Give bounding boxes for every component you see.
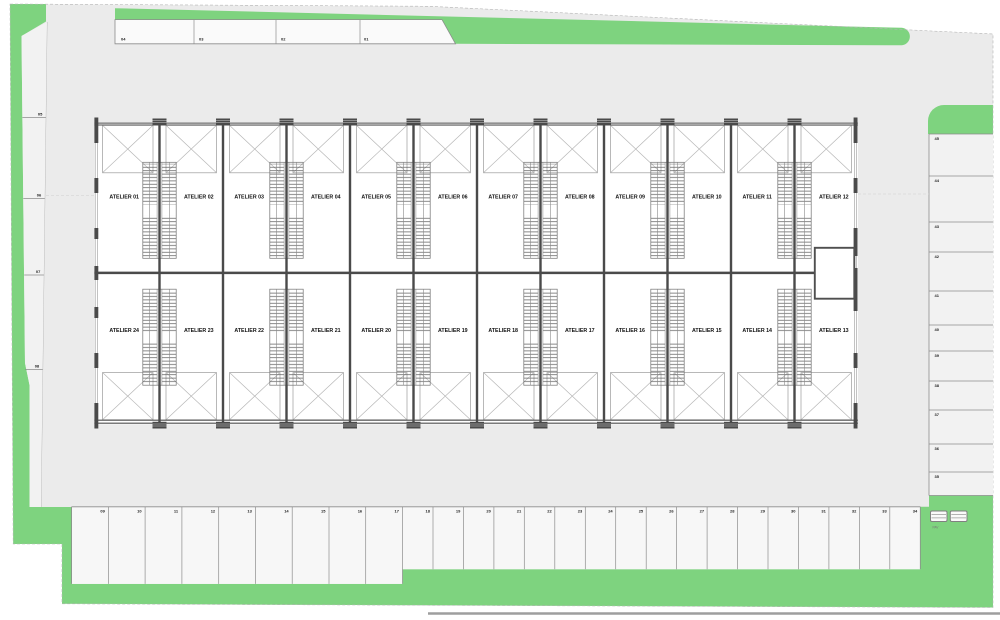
svg-text:32: 32 — [852, 509, 857, 514]
svg-text:10: 10 — [137, 509, 142, 514]
svg-text:ATELIER 07: ATELIER 07 — [488, 194, 518, 200]
svg-text:03: 03 — [199, 37, 204, 42]
svg-text:35: 35 — [935, 474, 940, 479]
svg-text:34: 34 — [913, 509, 918, 514]
svg-text:21: 21 — [517, 509, 522, 514]
svg-text:29: 29 — [761, 509, 766, 514]
svg-text:ATELIER 10: ATELIER 10 — [692, 194, 722, 200]
svg-text:25: 25 — [639, 509, 644, 514]
svg-text:42: 42 — [935, 254, 940, 259]
svg-text:ATELIER 11: ATELIER 11 — [743, 194, 772, 200]
svg-text:22: 22 — [547, 509, 552, 514]
svg-text:04: 04 — [121, 37, 126, 42]
svg-text:ATELIER 02: ATELIER 02 — [184, 194, 214, 200]
svg-text:13: 13 — [247, 509, 252, 514]
svg-text:45: 45 — [935, 136, 940, 141]
svg-text:ATELIER 20: ATELIER 20 — [361, 328, 391, 334]
svg-text:38: 38 — [935, 383, 940, 388]
svg-text:12: 12 — [211, 509, 216, 514]
svg-text:06: 06 — [37, 193, 42, 198]
svg-text:ATELIER 12: ATELIER 12 — [819, 194, 849, 200]
svg-text:31: 31 — [821, 509, 826, 514]
svg-text:ATELIER 03: ATELIER 03 — [234, 194, 264, 200]
svg-text:ATELIER 22: ATELIER 22 — [234, 328, 264, 334]
svg-text:26: 26 — [669, 509, 674, 514]
svg-text:ATELIER 15: ATELIER 15 — [692, 328, 722, 334]
svg-text:ATELIER 09: ATELIER 09 — [615, 194, 645, 200]
svg-text:16: 16 — [358, 509, 363, 514]
svg-text:44: 44 — [935, 178, 940, 183]
svg-text:17: 17 — [395, 509, 400, 514]
svg-text:37: 37 — [935, 412, 940, 417]
svg-text:ATELIER 01: ATELIER 01 — [109, 194, 139, 200]
svg-text:14: 14 — [284, 509, 289, 514]
svg-text:20: 20 — [486, 509, 491, 514]
svg-text:ATELIER 21: ATELIER 21 — [311, 328, 341, 334]
svg-text:ATELIER 13: ATELIER 13 — [819, 328, 849, 334]
svg-text:02: 02 — [281, 37, 286, 42]
svg-text:ATELIER 24: ATELIER 24 — [109, 328, 139, 334]
svg-text:18: 18 — [426, 509, 431, 514]
svg-text:ATELIER 23: ATELIER 23 — [184, 328, 214, 334]
svg-text:27: 27 — [700, 509, 705, 514]
svg-text:ATELIER 06: ATELIER 06 — [438, 194, 468, 200]
svg-text:ATELIER 08: ATELIER 08 — [565, 194, 595, 200]
svg-text:30: 30 — [791, 509, 796, 514]
svg-text:ATELIER 16: ATELIER 16 — [615, 328, 645, 334]
svg-text:19: 19 — [456, 509, 461, 514]
svg-text:ATELIER 18: ATELIER 18 — [488, 328, 518, 334]
svg-text:39: 39 — [935, 353, 940, 358]
svg-text:24: 24 — [608, 509, 613, 514]
svg-text:08: 08 — [35, 364, 40, 369]
svg-text:41: 41 — [935, 293, 940, 298]
svg-text:33: 33 — [882, 509, 887, 514]
svg-text:15: 15 — [321, 509, 326, 514]
svg-text:01: 01 — [364, 37, 369, 42]
svg-text:23: 23 — [578, 509, 583, 514]
svg-text:36: 36 — [935, 446, 940, 451]
svg-text:PAV: PAV — [933, 526, 940, 530]
svg-text:43: 43 — [935, 224, 940, 229]
svg-text:ATELIER 17: ATELIER 17 — [565, 328, 595, 334]
svg-text:ATELIER 05: ATELIER 05 — [361, 194, 391, 200]
svg-text:ATELIER 14: ATELIER 14 — [742, 328, 772, 334]
svg-text:40: 40 — [935, 327, 940, 332]
svg-text:ATELIER 19: ATELIER 19 — [438, 328, 468, 334]
svg-text:28: 28 — [730, 509, 735, 514]
svg-text:ATELIER 04: ATELIER 04 — [311, 194, 341, 200]
svg-text:07: 07 — [36, 269, 41, 274]
svg-text:09: 09 — [100, 509, 105, 514]
svg-text:05: 05 — [38, 112, 43, 117]
